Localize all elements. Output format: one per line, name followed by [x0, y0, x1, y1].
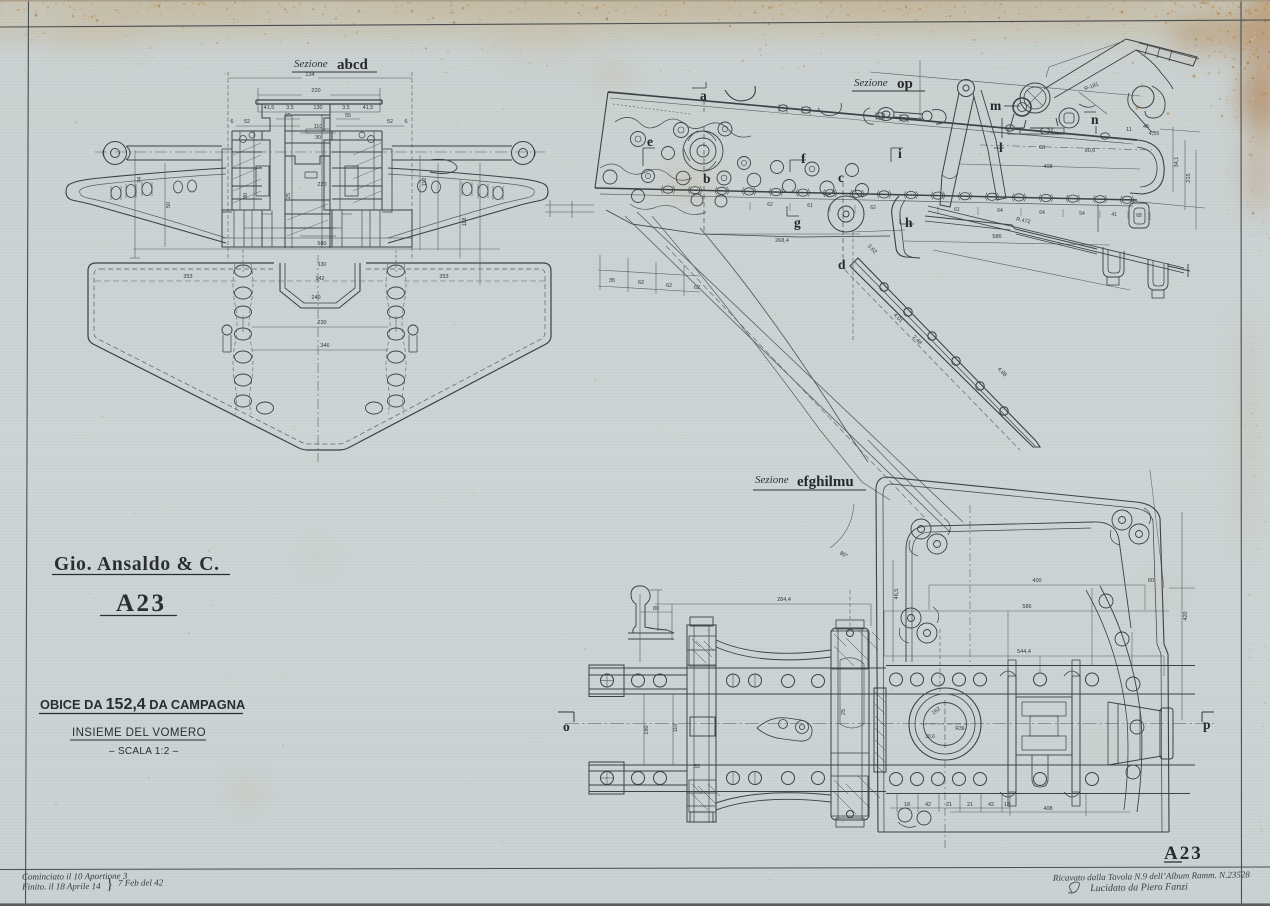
svg-text:18: 18	[904, 802, 910, 808]
svg-text:11: 11	[1126, 127, 1132, 133]
svg-text:efghilmu: efghilmu	[797, 474, 854, 490]
svg-text:586: 586	[1022, 604, 1031, 610]
svg-text:62: 62	[694, 285, 700, 291]
svg-text:6: 6	[230, 119, 233, 125]
svg-text:53: 53	[694, 764, 700, 770]
svg-text:g: g	[794, 215, 801, 230]
svg-text:4,55: 4,55	[1149, 131, 1160, 137]
svg-text:52: 52	[244, 119, 250, 125]
svg-text:68: 68	[1136, 213, 1142, 219]
svg-text:21: 21	[967, 802, 973, 808]
svg-text:55: 55	[345, 113, 351, 119]
svg-text:}: }	[106, 877, 113, 893]
svg-text:80: 80	[653, 606, 659, 612]
svg-text:74: 74	[137, 177, 143, 183]
svg-text:30: 30	[315, 135, 321, 141]
svg-text:18: 18	[1004, 802, 1010, 808]
svg-text:62: 62	[767, 202, 773, 208]
svg-text:110: 110	[673, 724, 679, 733]
svg-text:142: 142	[315, 276, 324, 282]
svg-text:h: h	[905, 215, 913, 230]
svg-text:f: f	[801, 151, 806, 166]
svg-text:586: 586	[992, 234, 1001, 240]
svg-text:50: 50	[166, 202, 172, 208]
svg-text:408: 408	[1043, 806, 1052, 812]
svg-text:54: 54	[1079, 211, 1085, 217]
svg-text:Sezione: Sezione	[294, 58, 328, 70]
svg-text:op: op	[897, 76, 913, 92]
svg-text:41,5: 41,5	[264, 105, 275, 111]
svg-text:Gio. Ansaldo & C.: Gio. Ansaldo & C.	[54, 554, 220, 575]
svg-text:e: e	[647, 134, 653, 149]
svg-text:l: l	[999, 140, 1003, 155]
svg-text:110: 110	[314, 124, 323, 130]
svg-text:420: 420	[1183, 611, 1189, 620]
svg-text:268,4: 268,4	[775, 238, 789, 244]
svg-text:353: 353	[183, 274, 192, 280]
svg-text:– SCALA 1:2 –: – SCALA 1:2 –	[109, 746, 179, 757]
svg-text:60: 60	[1148, 578, 1154, 584]
svg-text:284,4: 284,4	[777, 597, 791, 603]
svg-text:130: 130	[313, 105, 322, 111]
svg-text:A23: A23	[116, 590, 167, 617]
svg-text:41,5: 41,5	[363, 105, 374, 111]
svg-text:Sezione: Sezione	[755, 474, 789, 486]
svg-text:112: 112	[422, 178, 428, 187]
svg-text:64: 64	[1039, 210, 1045, 216]
svg-text:90,6: 90,6	[1085, 148, 1096, 154]
svg-text:30: 30	[243, 193, 249, 199]
svg-text:n: n	[1091, 112, 1099, 127]
svg-text:p: p	[1203, 717, 1211, 732]
svg-text:230: 230	[317, 320, 326, 326]
svg-text:240: 240	[311, 295, 320, 301]
svg-text:42: 42	[988, 802, 994, 808]
svg-text:30,6: 30,6	[925, 734, 935, 740]
svg-text:46,5: 46,5	[894, 589, 900, 600]
svg-text:408: 408	[1043, 164, 1052, 170]
svg-text:130: 130	[318, 262, 327, 268]
svg-text:544,4: 544,4	[1017, 649, 1031, 655]
svg-text:220: 220	[311, 88, 320, 94]
svg-text:64: 64	[997, 208, 1003, 214]
svg-text:25: 25	[286, 193, 292, 199]
svg-text:abcd: abcd	[337, 57, 369, 73]
svg-text:68: 68	[1039, 145, 1045, 151]
svg-text:35: 35	[609, 278, 615, 284]
svg-text:215: 215	[1186, 173, 1192, 182]
svg-text:21: 21	[946, 802, 952, 808]
svg-text:m: m	[990, 98, 1002, 113]
svg-text:Finito. il 18 Aprile 14: Finito. il 18 Aprile 14	[21, 881, 101, 892]
svg-text:41: 41	[1111, 212, 1117, 218]
svg-text:d: d	[838, 257, 846, 272]
svg-text:55: 55	[285, 113, 291, 119]
svg-text:42: 42	[925, 802, 931, 808]
svg-text:118: 118	[462, 218, 468, 227]
svg-text:25: 25	[841, 709, 847, 715]
svg-text:353: 353	[439, 274, 448, 280]
svg-text:INSIEME DEL VOMERO: INSIEME DEL VOMERO	[72, 727, 206, 739]
svg-text:580: 580	[317, 241, 326, 247]
svg-text:34,1: 34,1	[1174, 157, 1180, 168]
svg-text:R36: R36	[955, 726, 964, 732]
svg-text:62: 62	[638, 280, 644, 286]
svg-text:220: 220	[317, 182, 326, 188]
svg-text:6: 6	[404, 119, 407, 125]
svg-text:OBICE DA 152,4 DA CAMPAGNA: OBICE DA 152,4 DA CAMPAGNA	[40, 696, 245, 713]
svg-text:62: 62	[870, 205, 876, 211]
svg-text:7 Feb del 42: 7 Feb del 42	[118, 877, 164, 887]
svg-text:45: 45	[1143, 124, 1149, 130]
svg-text:52: 52	[387, 119, 393, 125]
svg-text:b: b	[703, 171, 711, 186]
svg-text:3,5: 3,5	[342, 105, 350, 111]
svg-text:400: 400	[1032, 578, 1041, 584]
svg-text:180: 180	[644, 725, 650, 734]
svg-text:134: 134	[305, 72, 314, 78]
svg-text:A23: A23	[1164, 843, 1203, 864]
svg-text:62: 62	[666, 283, 672, 289]
svg-text:61: 61	[807, 203, 813, 209]
svg-text:346: 346	[320, 343, 329, 349]
svg-text:Sezione: Sezione	[854, 77, 888, 89]
svg-text:3,5: 3,5	[286, 105, 294, 111]
svg-text:a: a	[700, 88, 707, 103]
svg-text:Lucidato da Piero Fanzi: Lucidato da Piero Fanzi	[1089, 881, 1188, 894]
svg-text:o: o	[563, 719, 570, 734]
